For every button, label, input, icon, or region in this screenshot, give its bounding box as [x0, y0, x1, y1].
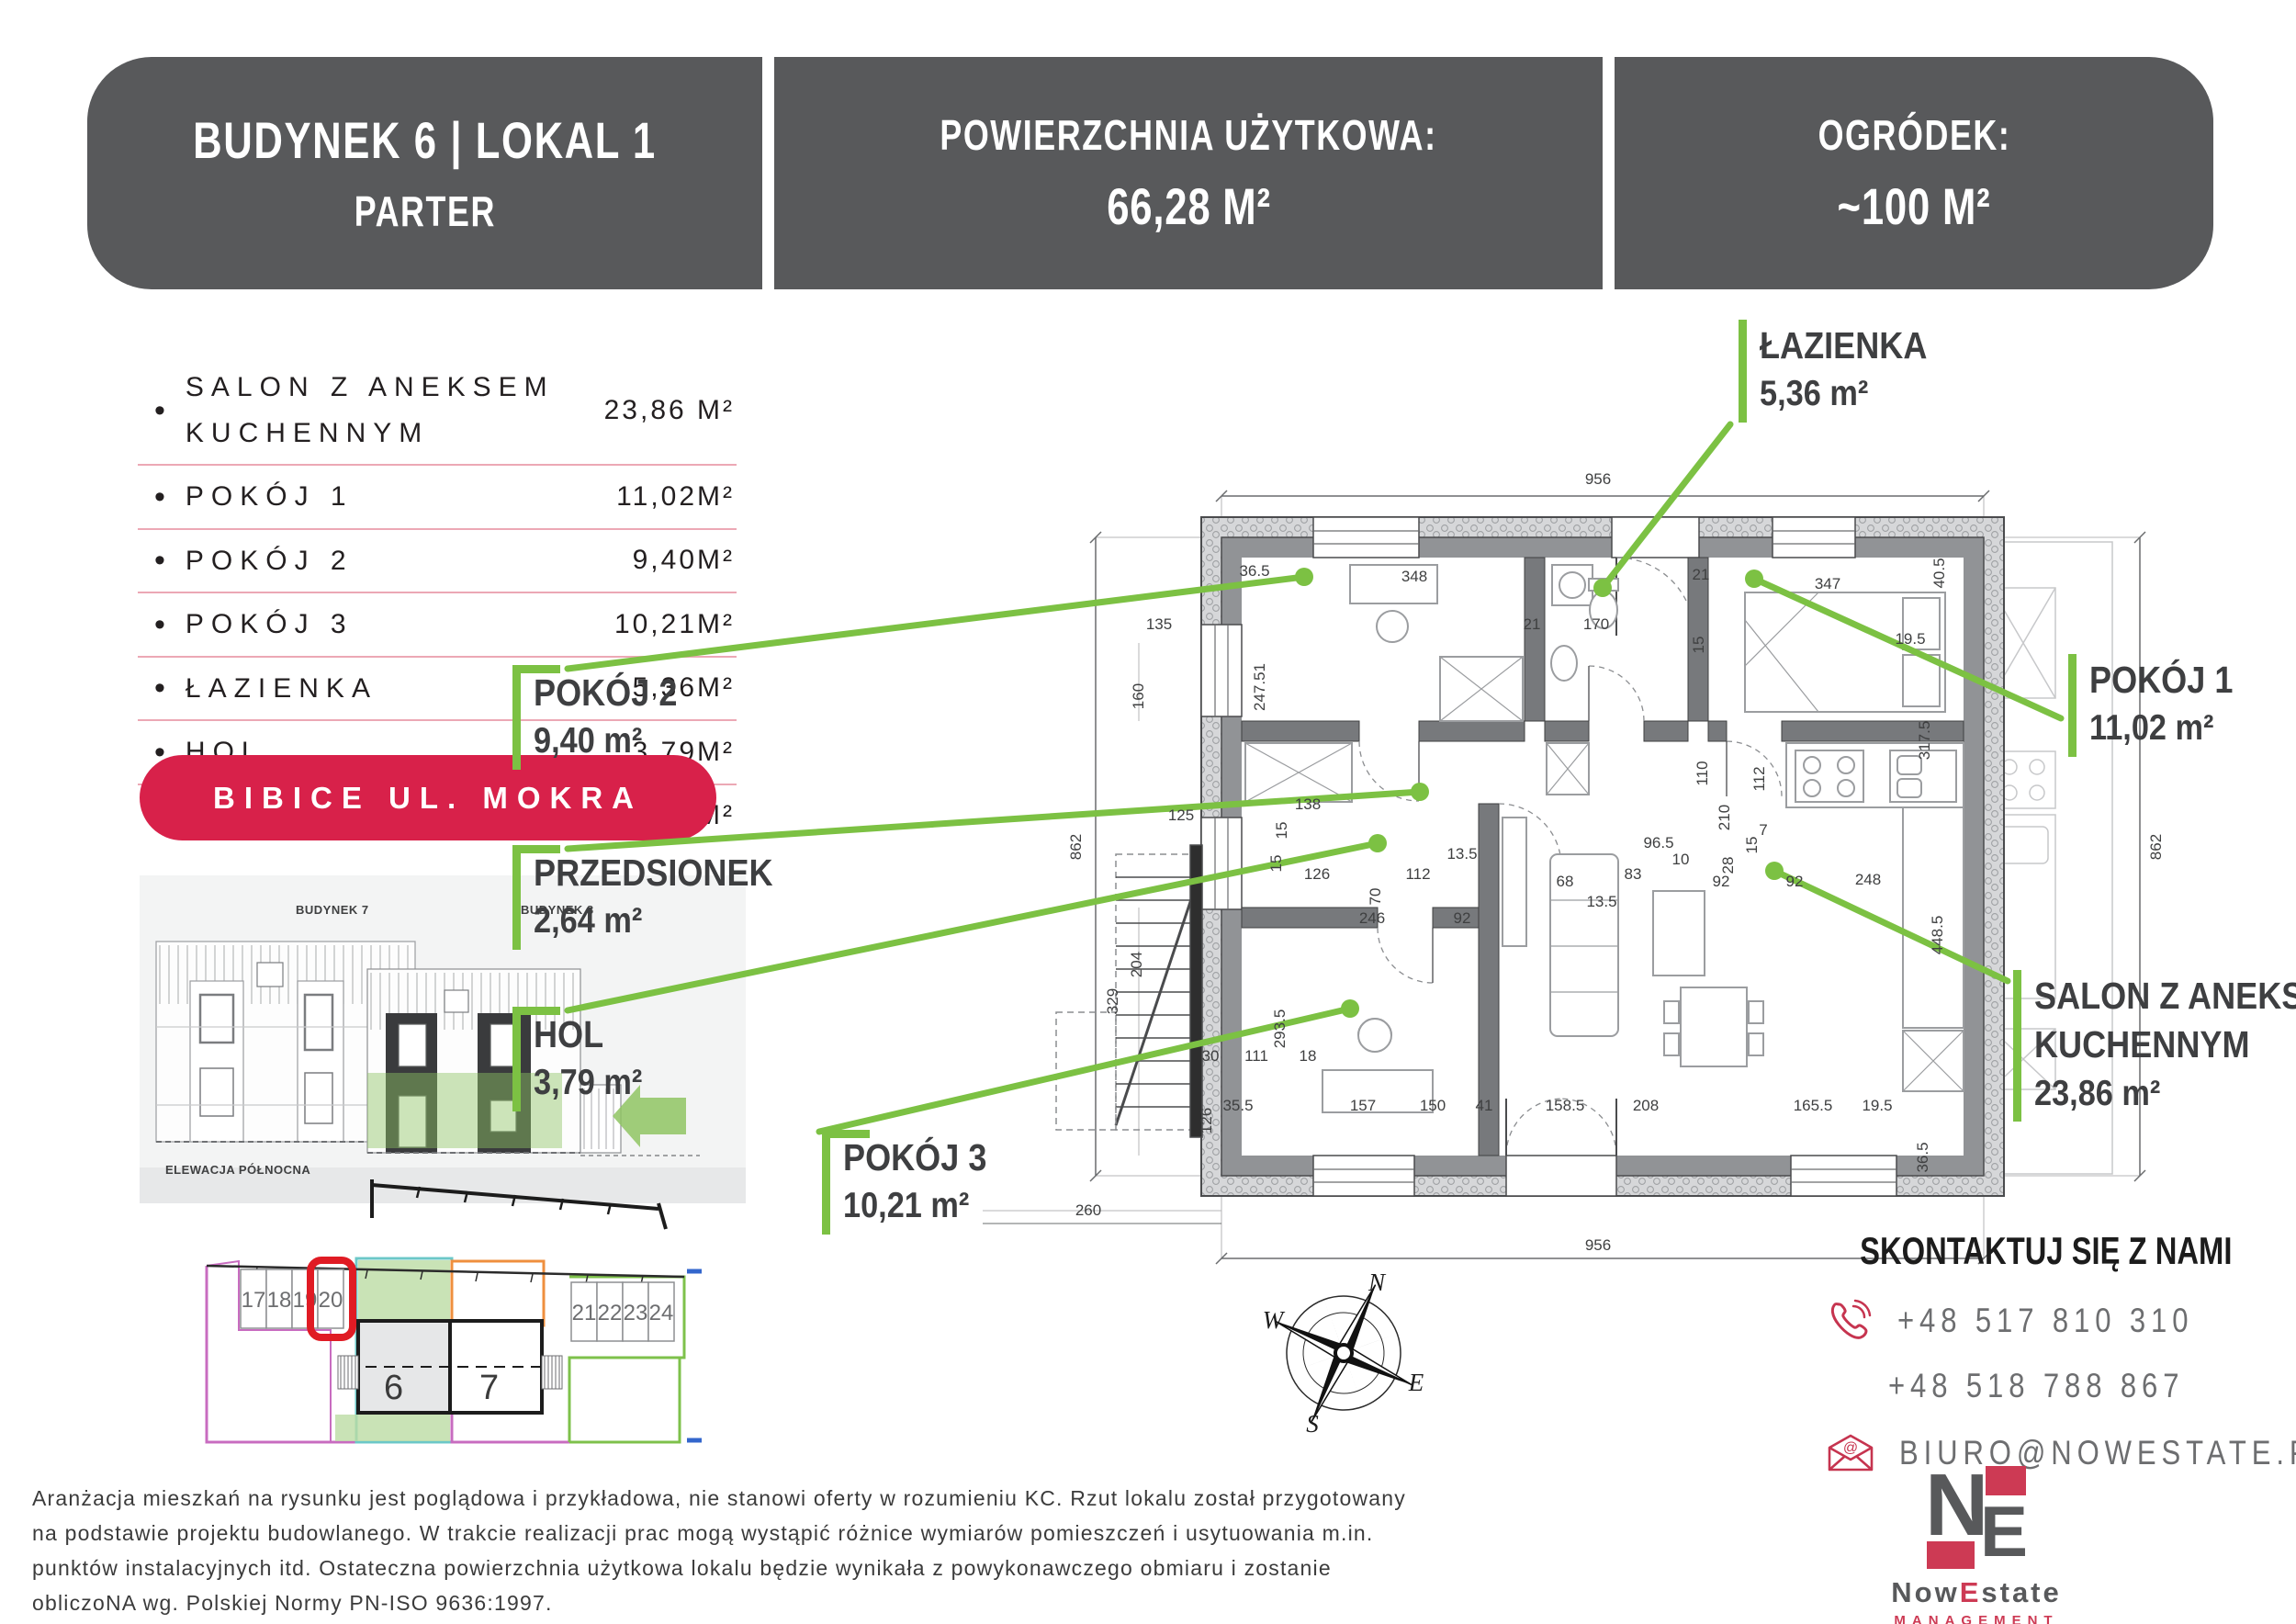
logo-letter-n: N: [1925, 1455, 1988, 1556]
dimension-label: 317.5: [1916, 721, 1934, 761]
dimension-label: 41: [1476, 1097, 1493, 1115]
dimension-label: 126: [1198, 1108, 1216, 1133]
space-22: 22: [598, 1301, 623, 1325]
header-area-section: POWIERZCHNIA UŻYTKOWA: 66,28 M²: [774, 57, 1603, 289]
dimension-label: 347: [1815, 575, 1840, 593]
room-callout-hol: HOL3,79 m²: [512, 1009, 657, 1111]
logo-letter-e: E: [1980, 1490, 2028, 1573]
dimension-label: 92: [1454, 909, 1471, 928]
dimension-label: 112: [1405, 865, 1430, 884]
compass-s: S: [1306, 1410, 1319, 1438]
dimension-label: 70: [1367, 888, 1385, 906]
garden-value: ~100 M²: [1816, 176, 2012, 236]
contact-title: SKONTAKTUJ SIĘ Z NAMI: [1807, 1229, 2147, 1273]
email-icon: @: [1826, 1433, 1875, 1473]
area-label: POWIERZCHNIA UŻYTKOWA:: [870, 110, 1507, 160]
dimension-label: 19.5: [1862, 1097, 1892, 1115]
phone-icon: [1826, 1297, 1874, 1345]
room-callout-pokoj2: POKÓJ 29,40 m²: [512, 667, 697, 770]
room-area: 9,40 m²: [534, 717, 677, 766]
dimension-label: 112: [1750, 766, 1769, 791]
dimension-label: 110: [1694, 761, 1712, 785]
room-name: ŁAZIENKA: [1760, 321, 1927, 370]
header-divider: [762, 57, 774, 289]
flyer-page: BUDYNEK 6 | LOKAL 1 PARTER POWIERZCHNIA …: [0, 0, 2296, 1624]
dimension-label: 18: [1300, 1047, 1317, 1066]
floor-label: PARTER: [334, 186, 516, 236]
dimension-label: 92: [1713, 873, 1730, 891]
dimension-label: 40.5: [1930, 558, 1949, 588]
room-name: POKÓJ 1: [2089, 656, 2233, 705]
room-name: KUCHENNYM: [2034, 1021, 2296, 1069]
dimension-label: 30: [1202, 1047, 1220, 1066]
disclaimer-text: Aranżacja mieszkań na rysunku jest poglą…: [32, 1481, 1419, 1620]
compass-n: N: [1367, 1269, 1387, 1296]
compass-e: E: [1408, 1369, 1424, 1396]
compass-w: W: [1263, 1306, 1286, 1334]
dimension-label: 36.5: [1239, 562, 1269, 581]
area-value: 66,28 M²: [1084, 176, 1294, 236]
room-callout-przedsionek: PRZEDSIONEK2,64 m²: [512, 847, 805, 950]
room-area: 10,21 m²: [843, 1182, 986, 1231]
dimension-label: 165.5: [1794, 1097, 1833, 1115]
dimension-label: 138: [1295, 795, 1321, 814]
logo-subtitle: MANAGEMENT: [1885, 1613, 2068, 1624]
room-area: 3,79 m²: [534, 1059, 642, 1108]
dimension-label: 13.5: [1586, 893, 1616, 911]
room-name: SALON Z ANEKSEM: [2034, 972, 2296, 1021]
building-6-number: 6: [384, 1369, 403, 1407]
logo-wordmark: NowEstate: [1885, 1576, 2068, 1609]
dimension-label: 21: [1524, 615, 1541, 634]
logo-mark: N E: [1925, 1466, 2028, 1569]
dimension-label: 170: [1583, 615, 1609, 634]
room-area: 2,64 m²: [534, 897, 773, 946]
space-21: 21: [572, 1301, 597, 1325]
room-area: 11,02 m²: [2089, 705, 2233, 753]
dimension-label: 862: [2147, 834, 2166, 860]
dimension-label: 246: [1359, 909, 1385, 928]
building-7-number: 7: [479, 1369, 499, 1407]
room-area: 23,86 m²: [2034, 1070, 2296, 1119]
dimension-label: 157: [1350, 1097, 1376, 1115]
dimension-label: 15: [1267, 855, 1286, 873]
dimension-label: 210: [1716, 805, 1734, 830]
dimension-label: 83: [1625, 865, 1642, 884]
dimension-label: 15: [1690, 637, 1708, 654]
dimension-label: 28: [1719, 857, 1738, 874]
dimension-label: 248: [1855, 871, 1881, 889]
dimension-label: 208: [1633, 1097, 1659, 1115]
dimension-label: 10: [1672, 851, 1690, 869]
dimension-label: 36.5: [1914, 1142, 1932, 1172]
dimension-label: 348: [1401, 568, 1427, 586]
room-callout-lazienka: ŁAZIENKA5,36 m²: [1739, 320, 1950, 423]
dimension-label: 96.5: [1643, 834, 1673, 852]
dimension-label: 329: [1104, 988, 1122, 1014]
dimension-label: 956: [1585, 1236, 1611, 1255]
header-garden-section: OGRÓDEK: ~100 M²: [1615, 57, 2213, 289]
dimension-label: 956: [1585, 470, 1611, 489]
header-unit-section: BUDYNEK 6 | LOKAL 1 PARTER: [87, 57, 762, 289]
dimension-label: 125: [1168, 806, 1194, 825]
dimension-label: 126: [1304, 865, 1330, 884]
dimension-label: 15: [1273, 822, 1291, 840]
room-area: 5,36 m²: [1760, 370, 1927, 419]
room-name: POKÓJ 2: [534, 669, 677, 717]
dimension-label: 19.5: [1895, 630, 1925, 648]
dimension-label: 160: [1130, 683, 1148, 709]
dimension-label: 247.51: [1251, 663, 1269, 711]
room-name: POKÓJ 3: [843, 1133, 986, 1182]
dimension-label: 13.5: [1446, 845, 1477, 863]
dimension-label: 68: [1557, 873, 1574, 891]
dimension-label: 35.5: [1222, 1097, 1253, 1115]
unit-title: BUDYNEK 6 | LOKAL 1: [128, 110, 722, 170]
room-name: PRZEDSIONEK: [534, 849, 773, 897]
space-24: 24: [649, 1301, 674, 1325]
header-divider: [1603, 57, 1615, 289]
room-callout-pokoj3: POKÓJ 310,21 m²: [822, 1132, 1007, 1235]
dimension-label: 293.5: [1271, 1009, 1289, 1049]
floor-plan: 95695686286226013536.5348247.51138151267…: [0, 303, 2296, 1295]
room-callout-salon: SALON Z ANEKSEMKUCHENNYM23,86 m²: [2013, 970, 2296, 1122]
room-name: HOL: [534, 1010, 642, 1059]
phone-row-2[interactable]: +48 518 788 867: [1888, 1367, 2241, 1405]
dimension-label: 204: [1128, 952, 1146, 977]
dimension-label: 158.5: [1546, 1097, 1585, 1115]
garden-label: OGRÓDEK:: [1791, 110, 2038, 160]
space-23: 23: [624, 1301, 648, 1325]
header-banner: BUDYNEK 6 | LOKAL 1 PARTER POWIERZCHNIA …: [87, 57, 2213, 289]
dimension-label: 448.5: [1929, 916, 1947, 955]
svg-text:@: @: [1843, 1440, 1858, 1456]
dimension-label: 21: [1693, 566, 1710, 584]
compass-rose-icon: N E S W: [1256, 1266, 1431, 1440]
company-logo: N E NowEstate MANAGEMENT: [1885, 1466, 2068, 1624]
phone-row-1[interactable]: +48 517 810 310: [1826, 1297, 2250, 1345]
dimension-label: 862: [1067, 834, 1086, 860]
dimension-label: 135: [1146, 615, 1172, 634]
room-callout-pokoj1: POKÓJ 111,02 m²: [2068, 654, 2253, 757]
dimension-label: 260: [1075, 1201, 1101, 1220]
external-stair: [1056, 845, 1202, 1137]
dimension-label: 150: [1420, 1097, 1446, 1115]
dimension-label: 7: [1759, 821, 1767, 840]
dimension-label: 111: [1244, 1047, 1268, 1066]
dimension-label: 92: [1786, 873, 1804, 891]
